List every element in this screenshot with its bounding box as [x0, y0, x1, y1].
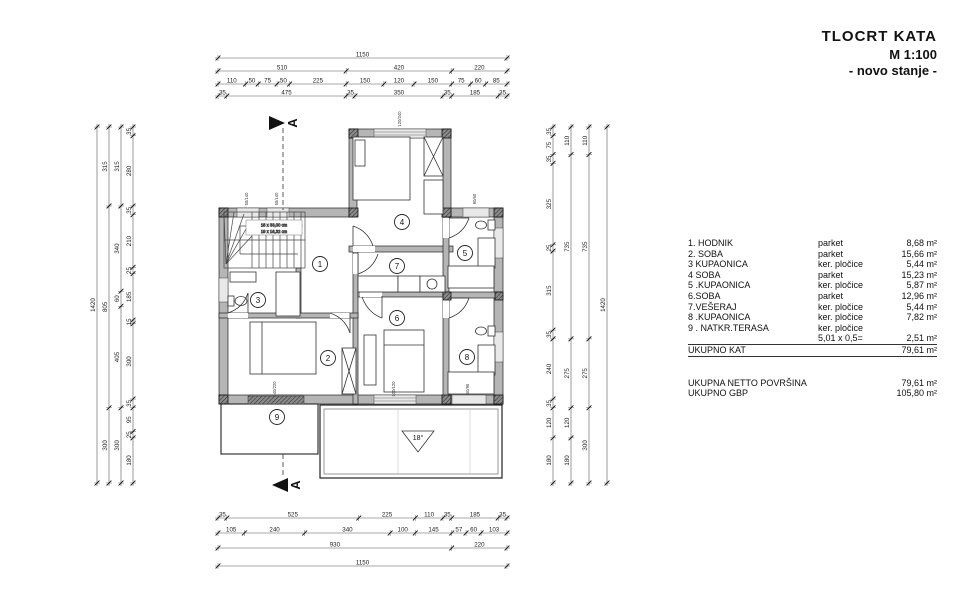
- svg-text:100: 100: [398, 526, 409, 533]
- svg-text:35: 35: [546, 127, 553, 134]
- svg-text:300: 300: [114, 440, 121, 451]
- legend-row: 3 KUPAONICAker. pločice5,44 m²: [688, 259, 937, 270]
- svg-text:35: 35: [126, 127, 133, 134]
- svg-text:525: 525: [288, 511, 299, 518]
- svg-text:15: 15: [126, 318, 133, 325]
- svg-text:735: 735: [582, 241, 589, 252]
- svg-text:145: 145: [428, 526, 439, 533]
- svg-text:210: 210: [126, 235, 133, 246]
- room-number-6: 6: [390, 311, 405, 326]
- svg-text:50/140: 50/140: [244, 192, 249, 205]
- room-number-1: 1: [313, 257, 328, 272]
- svg-text:510: 510: [277, 64, 288, 71]
- shower: [276, 272, 300, 316]
- svg-text:340: 340: [342, 526, 353, 533]
- svg-text:150: 150: [360, 77, 371, 84]
- svg-text:57: 57: [455, 526, 462, 533]
- svg-text:180: 180: [546, 455, 553, 466]
- svg-text:5: 5: [463, 249, 468, 258]
- section-letter: A: [288, 480, 303, 490]
- wc-tank: [228, 296, 234, 306]
- legend-row: 4 SOBAparket15,23 m²: [688, 270, 937, 281]
- svg-text:240: 240: [546, 363, 553, 374]
- legend-row: 8 .KUPAONICAker. pločice7,82 m²: [688, 312, 937, 323]
- svg-text:735: 735: [564, 241, 571, 252]
- svg-text:240: 240: [269, 526, 280, 533]
- drawing-state: - novo stanje -: [822, 63, 937, 79]
- svg-text:150: 150: [428, 77, 439, 84]
- svg-text:180: 180: [564, 455, 571, 466]
- svg-text:120/240: 120/240: [397, 111, 402, 127]
- svg-text:300: 300: [126, 356, 133, 367]
- svg-text:35: 35: [126, 399, 133, 406]
- svg-text:7: 7: [395, 262, 400, 271]
- room-number-4: 4: [395, 215, 410, 230]
- svg-text:60/90: 60/90: [465, 383, 470, 394]
- svg-text:280: 280: [126, 165, 133, 176]
- furniture: [228, 137, 495, 394]
- room-number-8: 8: [460, 350, 475, 365]
- svg-text:35: 35: [219, 511, 226, 518]
- section-arrow-icon: [269, 116, 285, 130]
- svg-text:35: 35: [444, 511, 451, 518]
- svg-text:300: 300: [102, 440, 109, 451]
- svg-text:225: 225: [313, 77, 324, 84]
- svg-text:180: 180: [126, 455, 133, 466]
- svg-text:225: 225: [382, 511, 393, 518]
- room-number-7: 7: [390, 259, 405, 274]
- legend-row: 2. SOBAparket15,66 m²: [688, 249, 937, 260]
- svg-text:3: 3: [256, 296, 261, 305]
- svg-text:25: 25: [126, 267, 133, 274]
- svg-text:35: 35: [546, 330, 553, 337]
- svg-text:50/140: 50/140: [274, 192, 279, 205]
- svg-text:185: 185: [470, 89, 481, 96]
- room-number-9: 9: [270, 410, 285, 425]
- staircase: 18 x 33,00 cm 19 x 16,32 cm: [224, 212, 305, 268]
- svg-text:35: 35: [546, 399, 553, 406]
- svg-text:110: 110: [227, 77, 237, 84]
- title-block: TLOCRT KATA M 1:100 - novo stanje -: [822, 28, 937, 79]
- svg-text:340: 340: [114, 243, 121, 254]
- svg-text:50: 50: [280, 77, 287, 84]
- legend-row: 9 . NATKR.TERASAker. pločice: [688, 323, 937, 334]
- svg-text:240/220: 240/220: [272, 381, 277, 397]
- svg-text:110: 110: [582, 135, 589, 145]
- svg-text:90/60: 90/60: [472, 193, 477, 204]
- svg-text:220: 220: [474, 541, 485, 548]
- svg-text:220: 220: [474, 64, 485, 71]
- svg-text:100/120: 100/120: [391, 381, 396, 397]
- section-marker-bottom: A: [272, 454, 303, 492]
- svg-text:350: 350: [394, 89, 405, 96]
- svg-text:275: 275: [582, 368, 589, 379]
- legend-row: 1. HODNIKparket8,68 m²: [688, 238, 937, 249]
- svg-text:35: 35: [126, 206, 133, 213]
- legend-row: 7.VEŠERAJker. pločice5,44 m²: [688, 302, 937, 313]
- svg-text:405: 405: [114, 351, 121, 362]
- bed: [250, 322, 316, 374]
- section-letter: A: [285, 118, 300, 128]
- washbasin: [230, 272, 256, 282]
- svg-text:60: 60: [114, 295, 121, 302]
- legend-total-row: UKUPNO KAT79,61 m²: [688, 345, 937, 357]
- svg-text:120: 120: [394, 77, 405, 84]
- drawing-scale: M 1:100: [822, 47, 937, 63]
- bathtub: [478, 345, 495, 375]
- svg-text:120: 120: [564, 417, 571, 428]
- svg-text:50: 50: [248, 77, 255, 84]
- svg-text:110: 110: [564, 135, 571, 145]
- bed: [384, 330, 424, 392]
- wc: [476, 221, 487, 229]
- bathtub: [478, 238, 495, 268]
- svg-text:35: 35: [499, 511, 506, 518]
- svg-text:75: 75: [264, 77, 271, 84]
- svg-text:300: 300: [582, 440, 589, 451]
- svg-text:35: 35: [219, 89, 226, 96]
- svg-text:6: 6: [395, 314, 400, 323]
- svg-text:110: 110: [424, 511, 434, 518]
- svg-text:35: 35: [546, 155, 553, 162]
- wc-tank: [488, 220, 495, 230]
- terrace: [221, 396, 318, 454]
- svg-text:25: 25: [126, 431, 133, 438]
- svg-text:275: 275: [564, 368, 571, 379]
- svg-text:420: 420: [394, 64, 405, 71]
- svg-text:8: 8: [465, 353, 470, 362]
- legend-subtotal-row: 5,01 x 0,5=2,51 m²: [688, 333, 937, 345]
- svg-text:2: 2: [326, 354, 331, 363]
- svg-text:185: 185: [126, 291, 133, 302]
- room-number-2: 2: [321, 351, 336, 366]
- room-number-3: 3: [251, 293, 266, 308]
- svg-text:35: 35: [347, 89, 354, 96]
- svg-text:930: 930: [330, 541, 341, 548]
- netto-row: UKUPNA NETTO POVRŠINA79,61 m²: [688, 378, 937, 389]
- svg-text:60: 60: [470, 526, 477, 533]
- svg-text:315: 315: [102, 161, 109, 172]
- svg-text:1: 1: [318, 260, 323, 269]
- legend-row: 6.SOBAparket12,96 m²: [688, 291, 937, 302]
- svg-text:75: 75: [546, 141, 553, 148]
- svg-text:805: 805: [102, 301, 109, 312]
- legend-row: 5 .KUPAONICAker. pločice5,87 m²: [688, 280, 937, 291]
- totals-summary: UKUPNA NETTO POVRŠINA79,61 m² UKUPNO GBP…: [688, 378, 937, 399]
- laundry-counter: [358, 276, 398, 292]
- svg-text:185: 185: [470, 511, 481, 518]
- wc-tank: [488, 326, 495, 336]
- wc: [235, 297, 247, 306]
- svg-text:1150: 1150: [356, 559, 370, 566]
- svg-text:1420: 1420: [90, 298, 97, 312]
- section-arrow-icon: [272, 478, 288, 492]
- svg-text:120: 120: [546, 417, 553, 428]
- svg-text:4: 4: [400, 218, 405, 227]
- svg-text:325: 325: [546, 198, 553, 209]
- svg-text:35: 35: [499, 89, 506, 96]
- drawing-title: TLOCRT KATA: [822, 28, 937, 47]
- svg-text:475: 475: [281, 89, 292, 96]
- svg-text:103: 103: [489, 526, 500, 533]
- svg-text:60: 60: [475, 77, 482, 84]
- room-schedule: 1. HODNIKparket8,68 m² 2. SOBAparket15,6…: [688, 238, 937, 399]
- stair-spec-line1: 18 x 33,00 cm: [261, 223, 288, 228]
- svg-text:1420: 1420: [600, 298, 607, 312]
- roof-slope-label: 18°: [413, 434, 424, 442]
- svg-text:1150: 1150: [356, 51, 370, 58]
- svg-text:75: 75: [458, 77, 465, 84]
- roof-below: 18°: [320, 405, 502, 478]
- svg-text:315: 315: [546, 285, 553, 296]
- room-number-5: 5: [458, 246, 473, 261]
- svg-text:105: 105: [226, 526, 237, 533]
- svg-text:315: 315: [114, 161, 121, 172]
- wc: [476, 327, 487, 335]
- stair-spec-line2: 19 x 16,32 cm: [261, 229, 288, 234]
- svg-text:95: 95: [126, 416, 133, 423]
- svg-text:25: 25: [546, 244, 553, 251]
- svg-text:35: 35: [444, 89, 451, 96]
- gbp-row: UKUPNO GBP105,80 m²: [688, 388, 937, 399]
- svg-text:85: 85: [493, 77, 500, 84]
- svg-text:9: 9: [275, 413, 280, 422]
